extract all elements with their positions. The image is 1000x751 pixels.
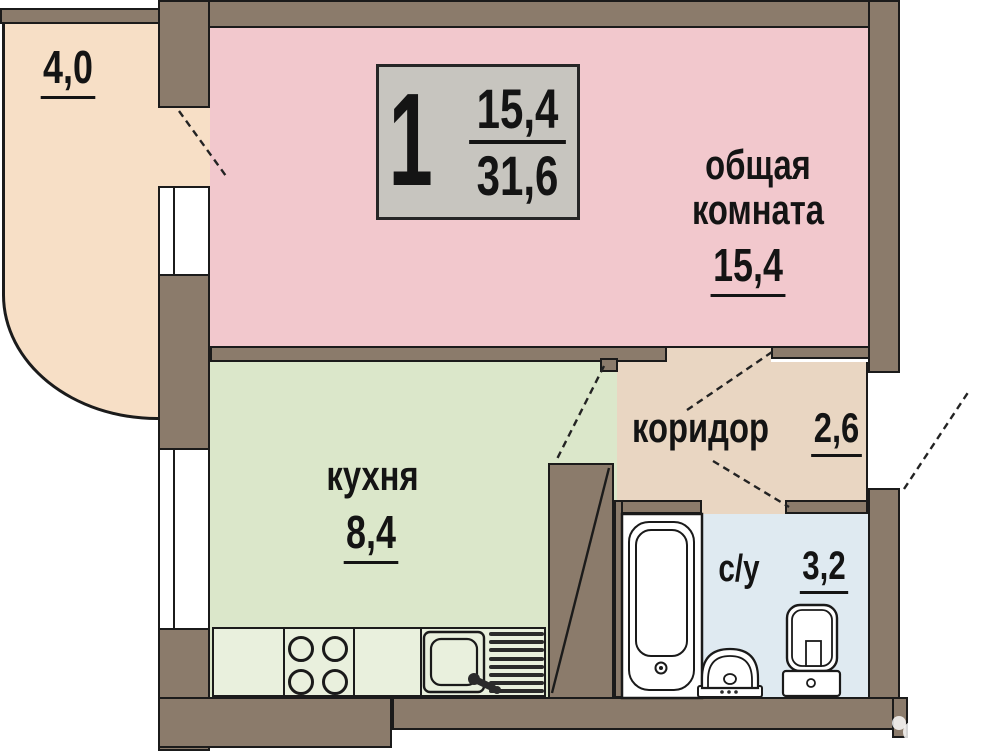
floor-plan: 1 15,4 31,6 4,0 общая комната 15,4 кухня… — [0, 0, 1000, 751]
apartment-summary-box: 1 15,4 31,6 — [376, 64, 580, 220]
wall-bath-left — [614, 500, 623, 698]
window-pane-line — [173, 188, 175, 274]
balcony-area-label: 4,0 — [29, 40, 107, 94]
bathroom-area: 3,2 — [791, 544, 857, 589]
rooms-count: 1 — [388, 81, 432, 199]
living-room-name: общая комната — [658, 142, 858, 232]
kitchen-name: кухня — [308, 452, 437, 500]
wall-left-middle — [158, 274, 210, 450]
watermark: Avito — [884, 700, 1000, 746]
wall-left-column — [158, 0, 210, 108]
window-lower — [158, 448, 210, 630]
avito-logo-icon — [884, 700, 930, 746]
bathroom-name: с/у — [712, 548, 767, 591]
wall-living-kitchen — [210, 346, 667, 362]
corridor-name: коридор — [628, 404, 772, 452]
window-upper — [158, 186, 210, 276]
living-door-threshold — [667, 346, 771, 362]
area-fraction: 15,4 31,6 — [453, 79, 582, 206]
counter-divider — [353, 629, 355, 695]
wall-top-main — [158, 0, 900, 28]
watermark-text: Avito — [930, 702, 1000, 746]
room-bathroom — [620, 514, 868, 698]
kitchen-area: 8,4 — [328, 505, 414, 559]
wall-bath-top-right — [785, 500, 868, 514]
wall-right-upper — [868, 0, 900, 373]
kitchen-counter — [212, 627, 546, 697]
wall-bottom-right — [392, 697, 906, 730]
living-room-area: 15,4 — [701, 238, 795, 292]
living-area-value: 15,4 — [469, 79, 566, 144]
total-area-value: 31,6 — [477, 144, 559, 206]
counter-divider — [283, 629, 285, 695]
window-pane-line — [173, 450, 175, 628]
entrance-door-swing — [904, 391, 969, 489]
wall-balcony-top — [0, 8, 160, 24]
wall-bath-top-left — [614, 500, 702, 514]
ventilation-duct — [548, 463, 614, 700]
counter-divider — [420, 629, 422, 695]
wall-living-corridor — [771, 346, 870, 359]
balcony-door-floor — [159, 108, 211, 188]
wall-kitchen-door-stub — [600, 358, 618, 372]
wall-bottom-left — [158, 697, 392, 748]
wall-right-lower — [868, 488, 900, 700]
corridor-area: 2,6 — [803, 404, 869, 452]
